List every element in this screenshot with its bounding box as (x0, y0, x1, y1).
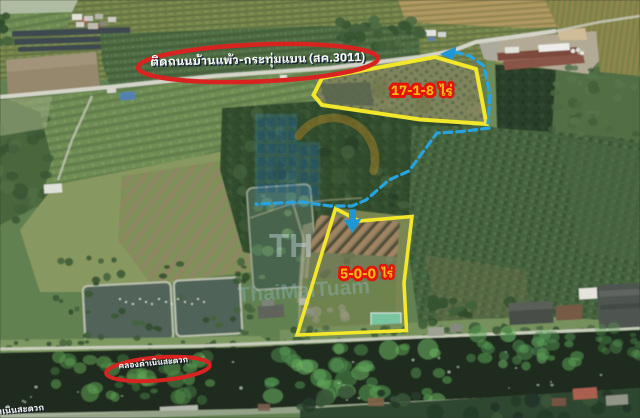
svg-text:TH: TH (269, 227, 313, 264)
